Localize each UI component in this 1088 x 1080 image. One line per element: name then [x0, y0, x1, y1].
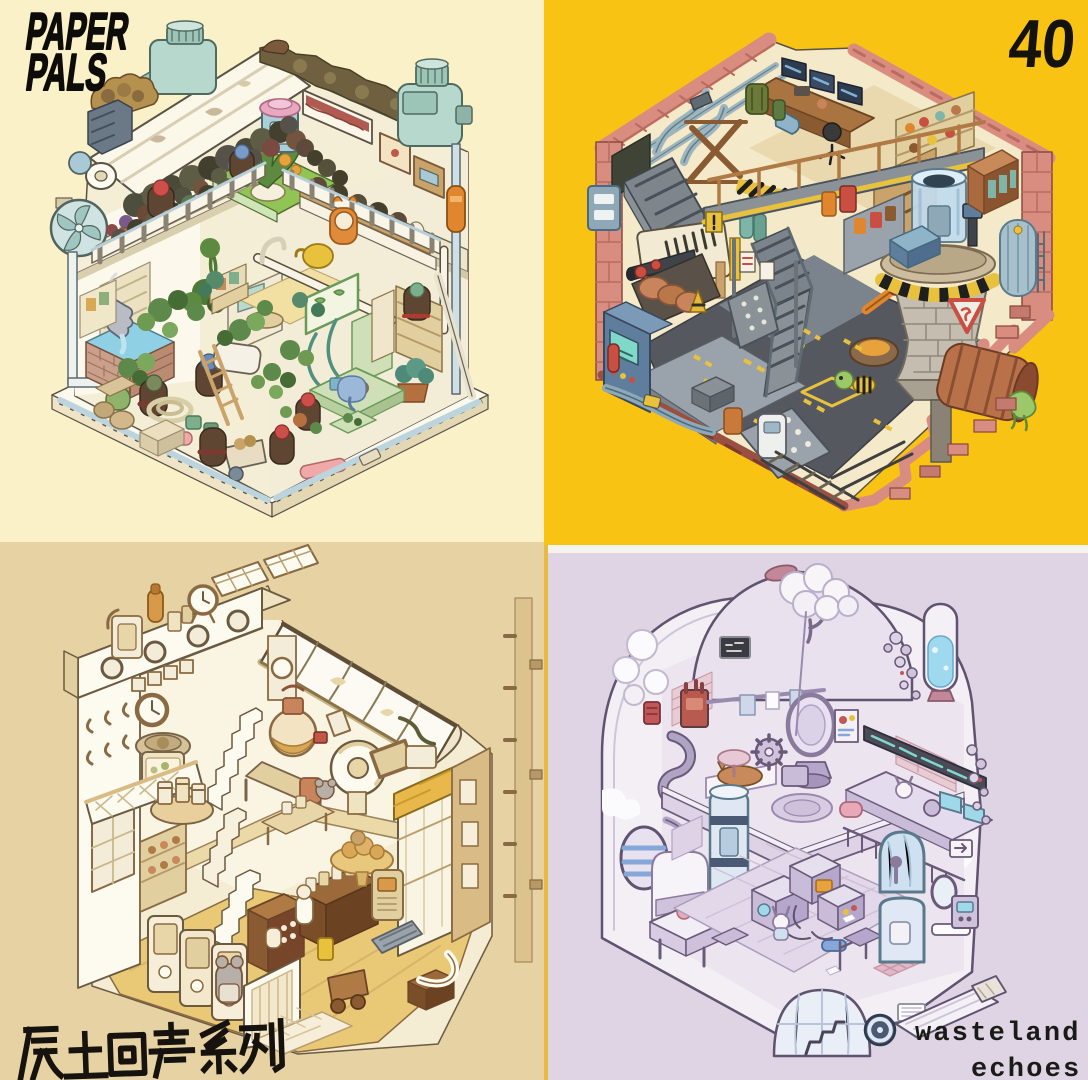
svg-text:40: 40	[1006, 6, 1079, 82]
svg-text:echoes: echoes	[971, 1055, 1081, 1080]
svg-text:wasteland: wasteland	[915, 1019, 1081, 1049]
svg-text:PALS: PALS	[23, 44, 111, 102]
